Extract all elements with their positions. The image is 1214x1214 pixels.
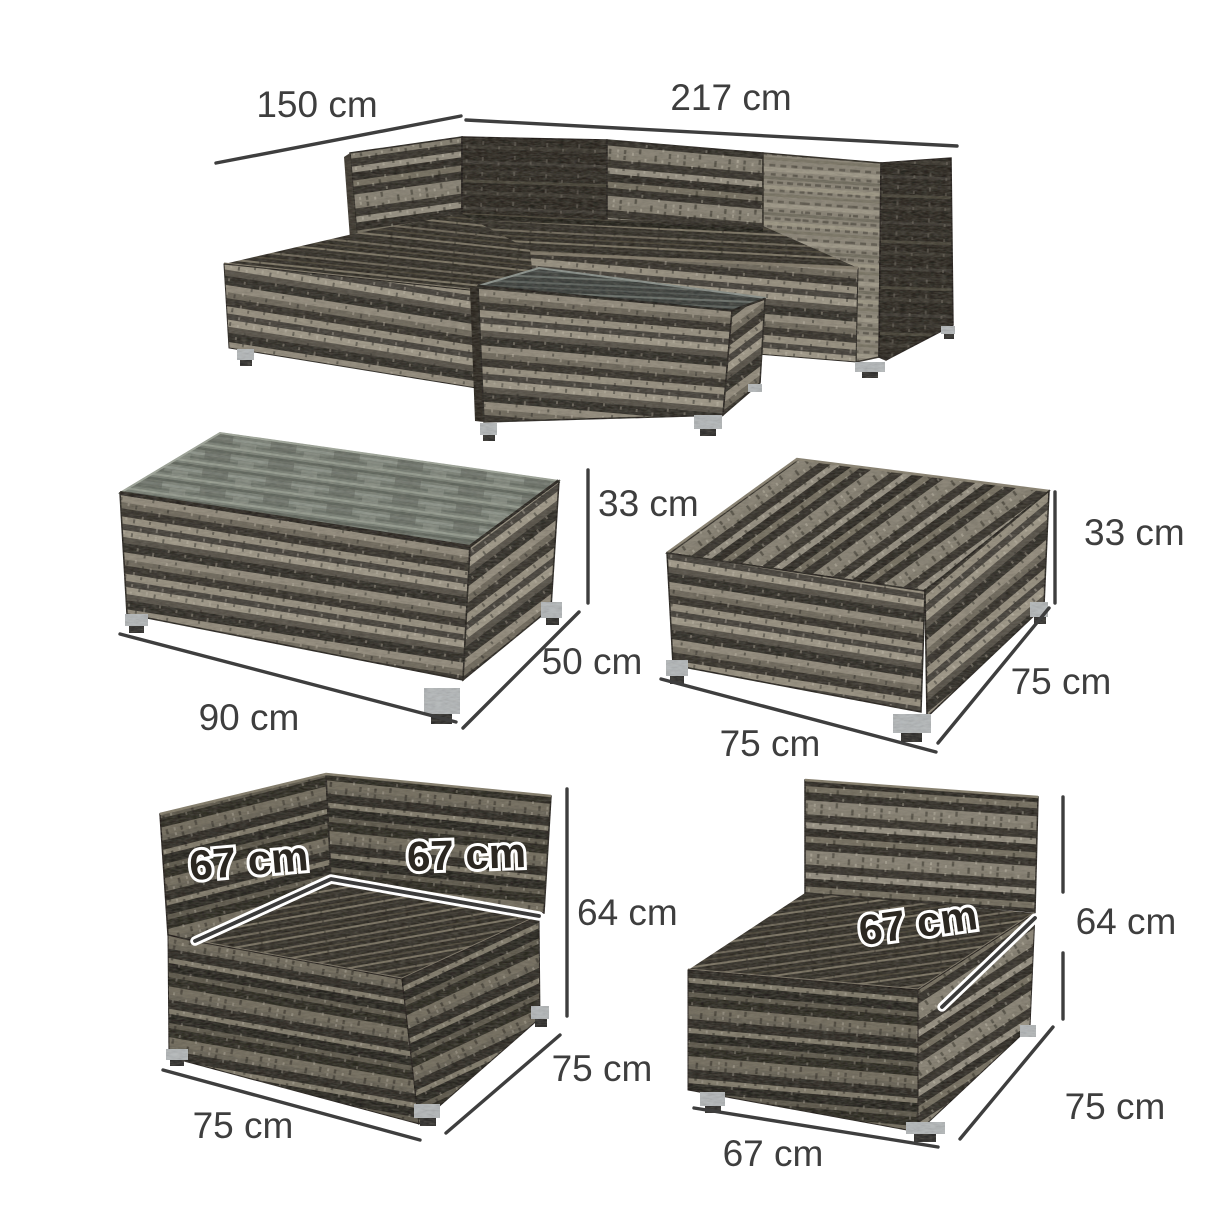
svg-text:150 cm: 150 cm [256, 84, 377, 125]
svg-text:75 cm: 75 cm [193, 1105, 294, 1146]
svg-text:64 cm: 64 cm [577, 892, 678, 933]
svg-text:75 cm: 75 cm [720, 723, 821, 764]
svg-text:90 cm: 90 cm [199, 697, 300, 738]
svg-text:67 cm: 67 cm [406, 829, 527, 880]
svg-text:33 cm: 33 cm [1084, 512, 1185, 553]
svg-text:67 cm: 67 cm [723, 1133, 824, 1174]
svg-text:33 cm: 33 cm [598, 483, 699, 524]
svg-text:75 cm: 75 cm [552, 1048, 653, 1089]
svg-text:64 cm: 64 cm [1076, 901, 1177, 942]
svg-text:75 cm: 75 cm [1011, 661, 1112, 702]
svg-text:50 cm: 50 cm [542, 641, 643, 682]
svg-text:217 cm: 217 cm [670, 77, 791, 118]
svg-text:75 cm: 75 cm [1065, 1086, 1166, 1127]
